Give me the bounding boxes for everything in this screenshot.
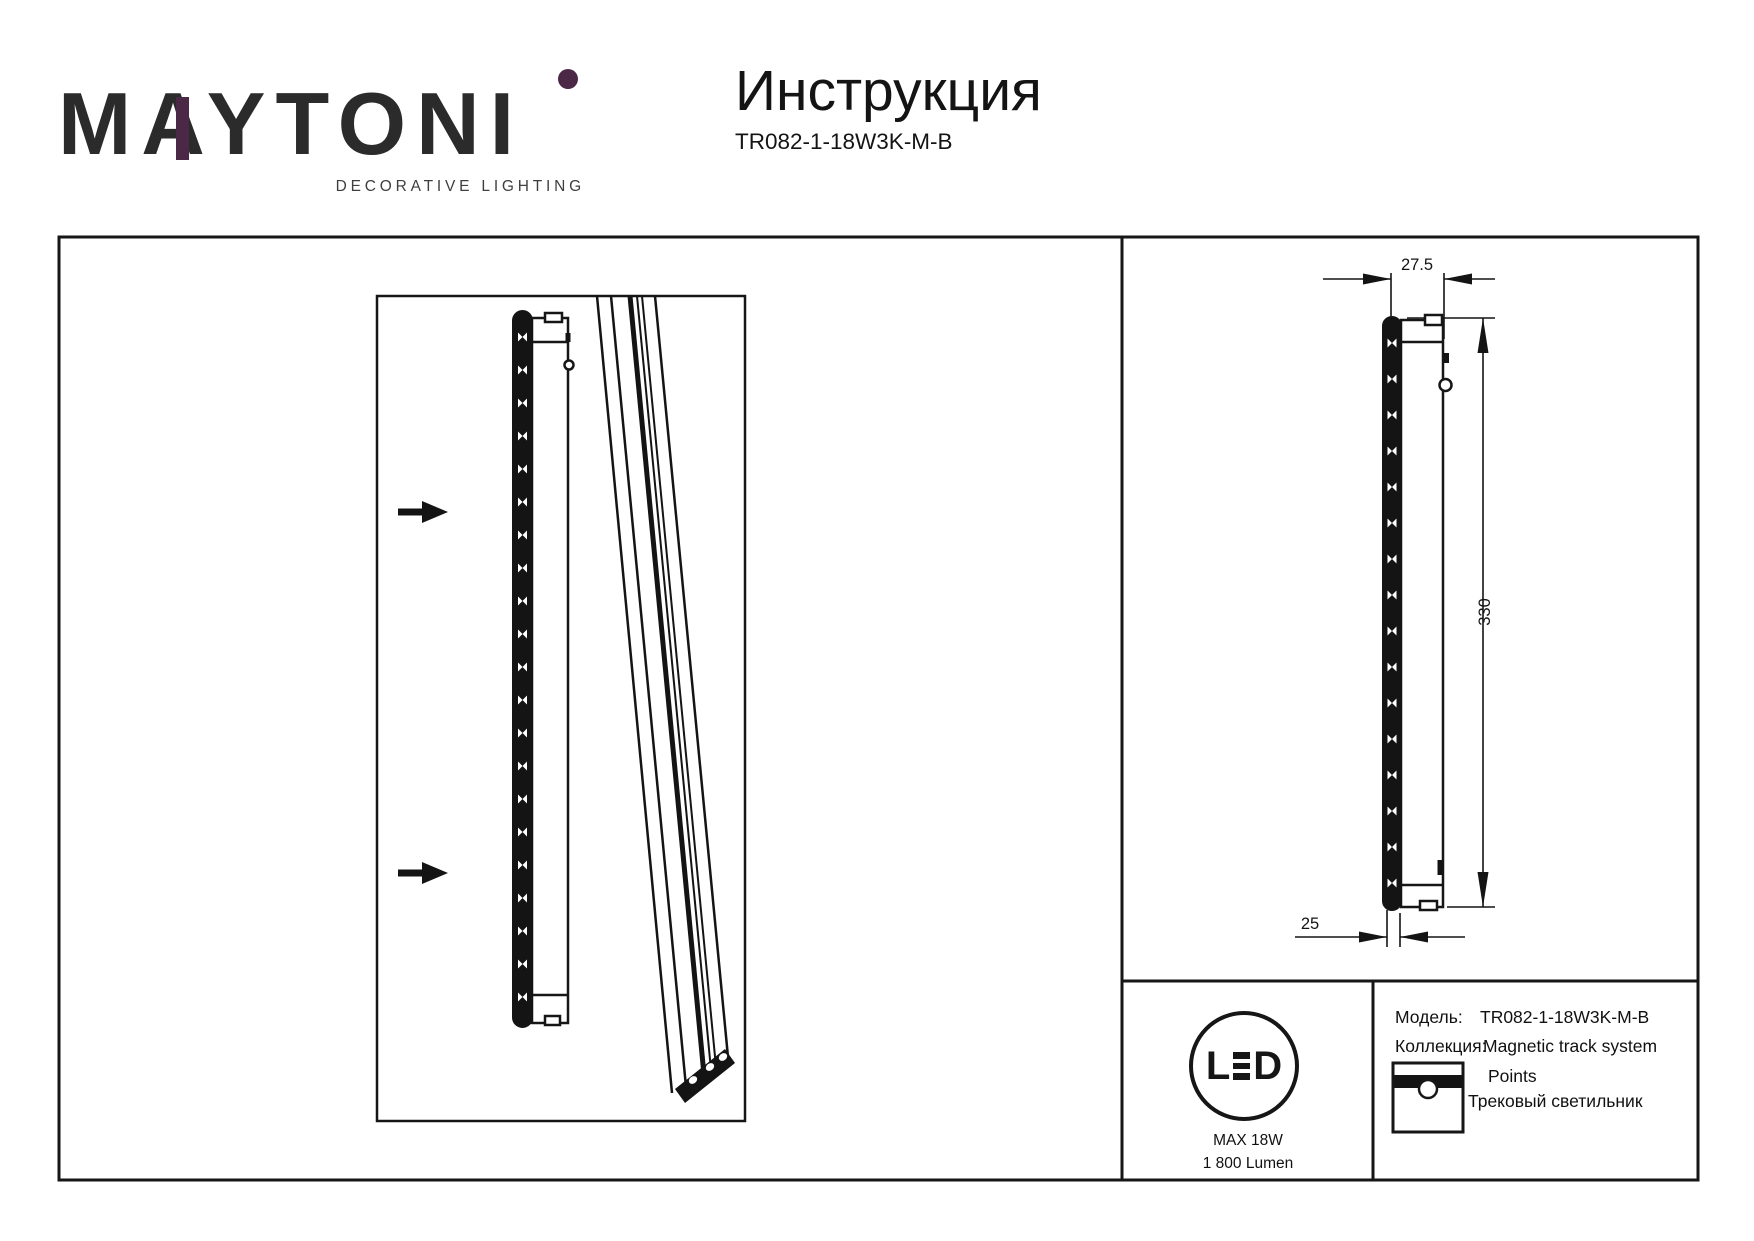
fixture-top-notch xyxy=(545,313,562,322)
brand-wordmark: MAYTONI xyxy=(58,80,524,168)
spec-collection-value: Magnetic track system xyxy=(1483,1036,1657,1057)
fixture-side-button-side xyxy=(1440,379,1452,391)
fixture-body-side xyxy=(1401,320,1443,907)
dim-height-label: 330 xyxy=(1476,598,1494,626)
led-strip xyxy=(513,311,532,1027)
page-title: Инструкция xyxy=(735,62,1042,122)
installation-panel xyxy=(377,296,745,1121)
fixture-top-notch-side xyxy=(1425,315,1442,325)
max-power-label: MAX 18W xyxy=(1123,1132,1373,1150)
dim-width-label: 27.5 xyxy=(1401,256,1433,274)
led-letter-d: D xyxy=(1253,1046,1282,1086)
track-light-fixture xyxy=(513,311,574,1027)
fixture-side-view xyxy=(1383,315,1452,910)
led-badge: L D xyxy=(1189,1011,1299,1121)
instruction-sheet: { "colors": { "ink": "#161616", "accent_… xyxy=(0,0,1754,1241)
lumen-label: 1 800 Lumen xyxy=(1123,1155,1373,1173)
spec-series-value: Points xyxy=(1488,1066,1537,1087)
led-e-bars-icon xyxy=(1233,1052,1250,1080)
spec-model-label: Модель: xyxy=(1395,1007,1463,1028)
page-model-code: TR082-1-18W3K-M-B xyxy=(735,129,953,155)
fixture-body xyxy=(532,318,568,1023)
fixture-side-button xyxy=(565,361,574,370)
fixture-bottom-notch xyxy=(545,1016,560,1025)
logo-m-accent-bar xyxy=(176,97,189,160)
logo-i-dot-icon xyxy=(558,69,578,89)
insert-arrow-bottom xyxy=(398,862,448,884)
led-letter-l: L xyxy=(1206,1046,1230,1086)
fixture-side-clip xyxy=(566,333,571,342)
series-icon xyxy=(1393,1063,1463,1132)
insert-arrow-top xyxy=(398,501,448,523)
spec-collection-label: Коллекция: xyxy=(1395,1036,1487,1057)
brand-tagline: DECORATIVE LIGHTING xyxy=(58,178,585,196)
magnetic-track-rail xyxy=(597,296,735,1103)
dimension-panel: 27.5 330 25 xyxy=(1295,256,1495,1132)
fixture-bottom-notch-side xyxy=(1420,901,1437,910)
spec-model-value: TR082-1-18W3K-M-B xyxy=(1480,1007,1649,1028)
dim-depth: 25 xyxy=(1295,910,1465,947)
spec-type-value: Трековый светильник xyxy=(1468,1091,1643,1112)
fixture-side-clip-top xyxy=(1443,353,1449,363)
dim-depth-label: 25 xyxy=(1301,915,1319,933)
led-badge-text: L D xyxy=(1206,1046,1282,1086)
led-strip-side xyxy=(1383,317,1401,910)
brand-logo: MAYTONI DECORATIVE LIGHTING xyxy=(58,80,538,200)
fixture-side-clip-bottom xyxy=(1438,860,1443,875)
